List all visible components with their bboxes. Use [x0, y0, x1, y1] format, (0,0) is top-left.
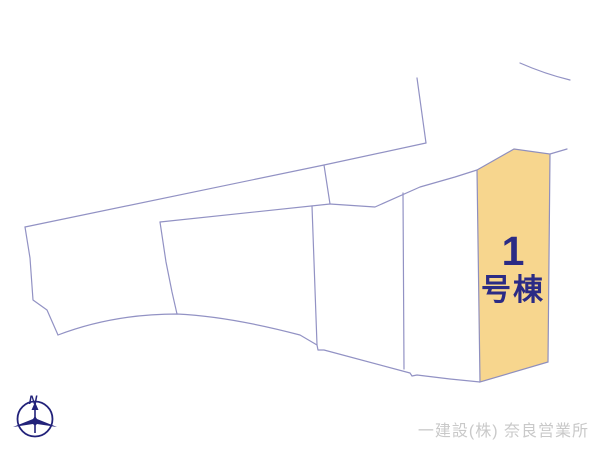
compass-n-label: N [29, 393, 38, 407]
parcel-divider-1 [312, 206, 317, 345]
boundary-diagonal-connector [324, 165, 330, 204]
compass-north-icon: N [13, 393, 57, 437]
boundary-west-parcel-left-edge [25, 227, 58, 335]
boundary-top-edge-extension [550, 149, 567, 154]
boundary-inner-north-diagonal [160, 204, 330, 222]
boundary-top-right-curve [520, 63, 570, 80]
parcel-divider-2 [403, 193, 404, 369]
site-plan-canvas: N 1 号棟 一建設(株) 奈良営業所 [0, 0, 600, 450]
boundary-south-frontage [58, 314, 480, 382]
highlighted-lot-parcel [477, 149, 550, 382]
boundary-inner-parcel-west-edge [160, 222, 177, 314]
site-plan-drawing: N [0, 0, 600, 450]
boundary-upper-diagonal [25, 143, 426, 227]
boundary-top-parcel-east-edge [417, 78, 426, 143]
company-credit: 一建設(株) 奈良営業所 [418, 417, 589, 441]
